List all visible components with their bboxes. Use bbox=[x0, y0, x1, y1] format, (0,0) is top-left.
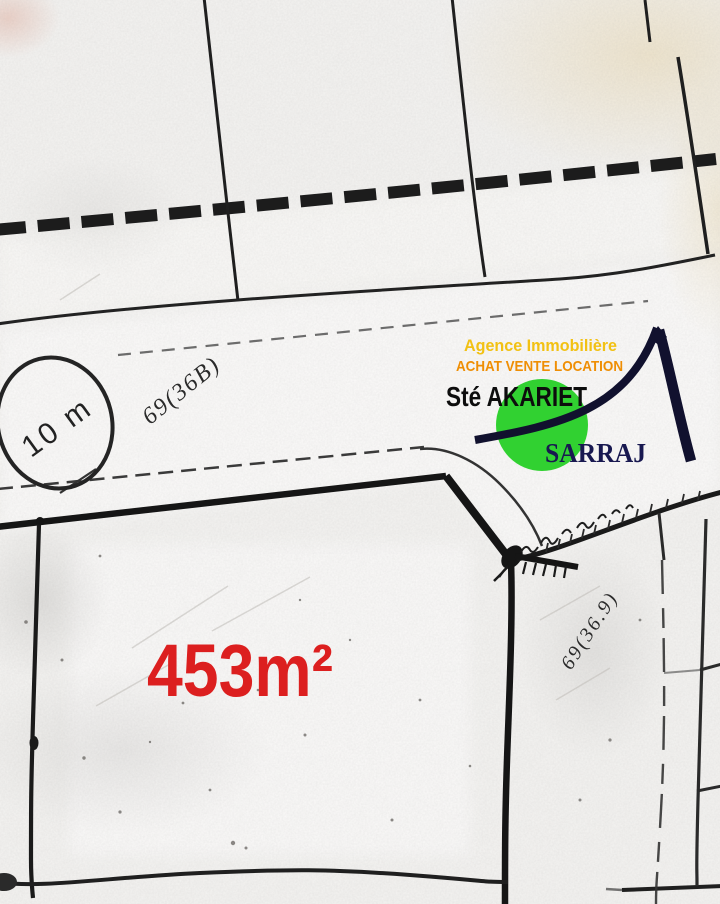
svg-text:SARRAJ: SARRAJ bbox=[545, 438, 646, 468]
svg-text:ACHAT VENTE LOCATION: ACHAT VENTE LOCATION bbox=[456, 358, 623, 375]
svg-text:453m²: 453m² bbox=[147, 629, 333, 712]
svg-text:Sté AKARIET: Sté AKARIET bbox=[446, 381, 587, 412]
svg-text:Agence Immobilière: Agence Immobilière bbox=[464, 336, 617, 355]
